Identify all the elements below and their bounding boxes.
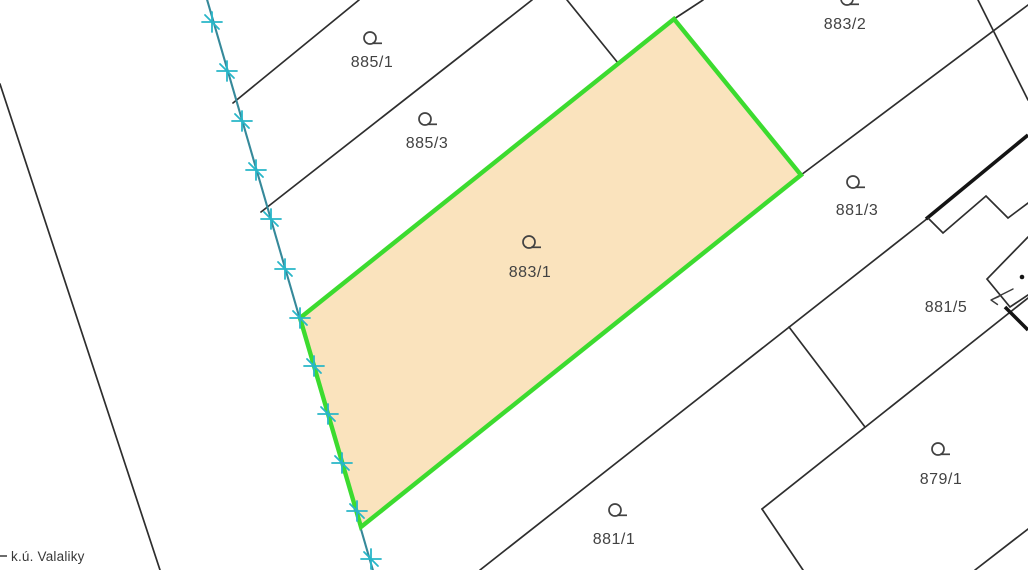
cadastral-unit-label: k.ú. Valaliky (0, 549, 85, 564)
building-point-marker (1020, 275, 1025, 280)
cadastral-unit-name: k.ú. Valaliky (11, 549, 85, 564)
parcel-number: 883/1 (509, 264, 552, 281)
parcel-number: 879/1 (920, 471, 963, 488)
parcel-number: 881/3 (836, 202, 879, 219)
parcel-label-881-5: 881/5 (925, 299, 968, 316)
parcel-number: 885/3 (406, 135, 449, 152)
parcel-number: 881/5 (925, 299, 968, 316)
parcel-number: 881/1 (593, 531, 636, 548)
parcel-number: 883/2 (824, 16, 867, 33)
parcel-number: 885/1 (351, 54, 394, 71)
map-canvas[interactable]: 885/1 885/3 883/1 883/2 881/3 881/5 881/… (0, 0, 1028, 570)
